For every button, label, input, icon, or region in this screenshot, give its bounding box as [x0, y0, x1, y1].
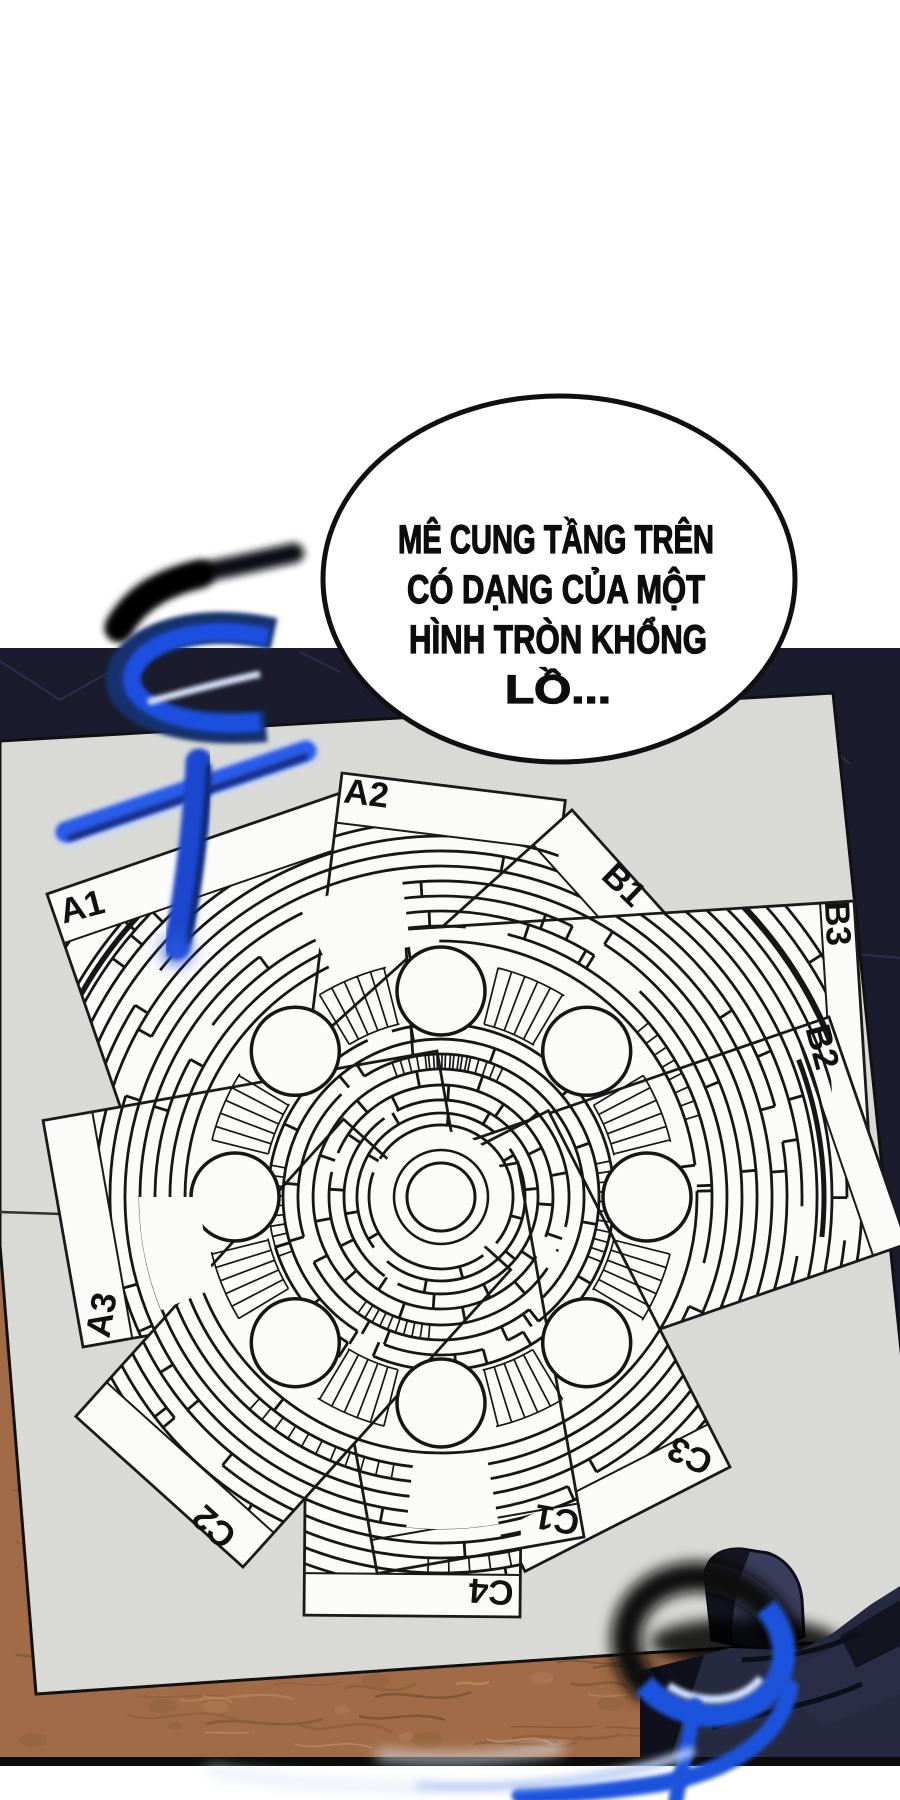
svg-text:A2: A2 — [342, 772, 391, 816]
svg-text:MÊ CUNG TẦNG TRÊN: MÊ CUNG TẦNG TRÊN — [398, 516, 714, 562]
svg-text:HÌNH TRÒN KHỔNG: HÌNH TRÒN KHỔNG — [409, 615, 707, 662]
svg-text:B3: B3 — [817, 900, 858, 947]
svg-text:A3: A3 — [79, 1290, 125, 1341]
svg-text:C4: C4 — [467, 1570, 515, 1612]
svg-text:CÓ DẠNG CỦA MỘT: CÓ DẠNG CỦA MỘT — [407, 566, 705, 612]
svg-text:LỒ...: LỒ... — [505, 666, 611, 712]
svg-text:C1: C1 — [532, 1496, 583, 1542]
